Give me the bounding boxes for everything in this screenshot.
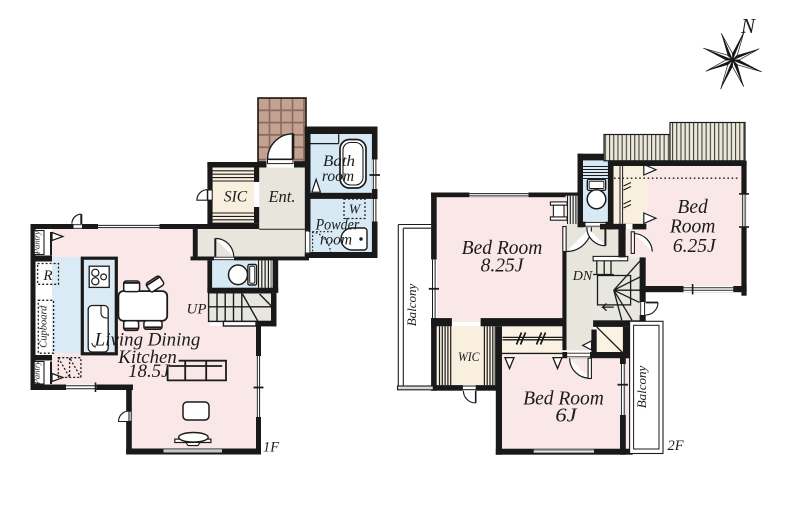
svg-text:DN: DN	[572, 269, 593, 284]
svg-text:Balcony: Balcony	[404, 283, 419, 326]
svg-text:Pantry: Pantry	[32, 231, 42, 256]
svg-text:6J: 6J	[555, 406, 578, 427]
svg-text:Ent.: Ent.	[267, 187, 295, 206]
svg-text:2F: 2F	[667, 438, 683, 454]
svg-text:Room: Room	[669, 217, 716, 238]
svg-text:UP: UP	[187, 302, 207, 318]
svg-text:room: room	[322, 168, 354, 185]
svg-text:N: N	[740, 14, 756, 38]
svg-text:1F: 1F	[263, 440, 279, 456]
svg-text:Cupboard: Cupboard	[38, 305, 49, 348]
svg-text:Pantry: Pantry	[32, 361, 42, 386]
svg-text:18.5J: 18.5J	[128, 361, 171, 382]
svg-text:W: W	[349, 202, 362, 217]
svg-text:room: room	[320, 232, 352, 249]
svg-text:6.25J: 6.25J	[673, 236, 717, 257]
svg-text:WIC: WIC	[458, 350, 480, 364]
svg-text:Bed: Bed	[677, 197, 708, 218]
svg-text:8.25J: 8.25J	[481, 256, 525, 277]
svg-text:Balcony: Balcony	[634, 365, 649, 408]
svg-text:SIC: SIC	[224, 189, 248, 206]
svg-text:R: R	[42, 268, 52, 284]
